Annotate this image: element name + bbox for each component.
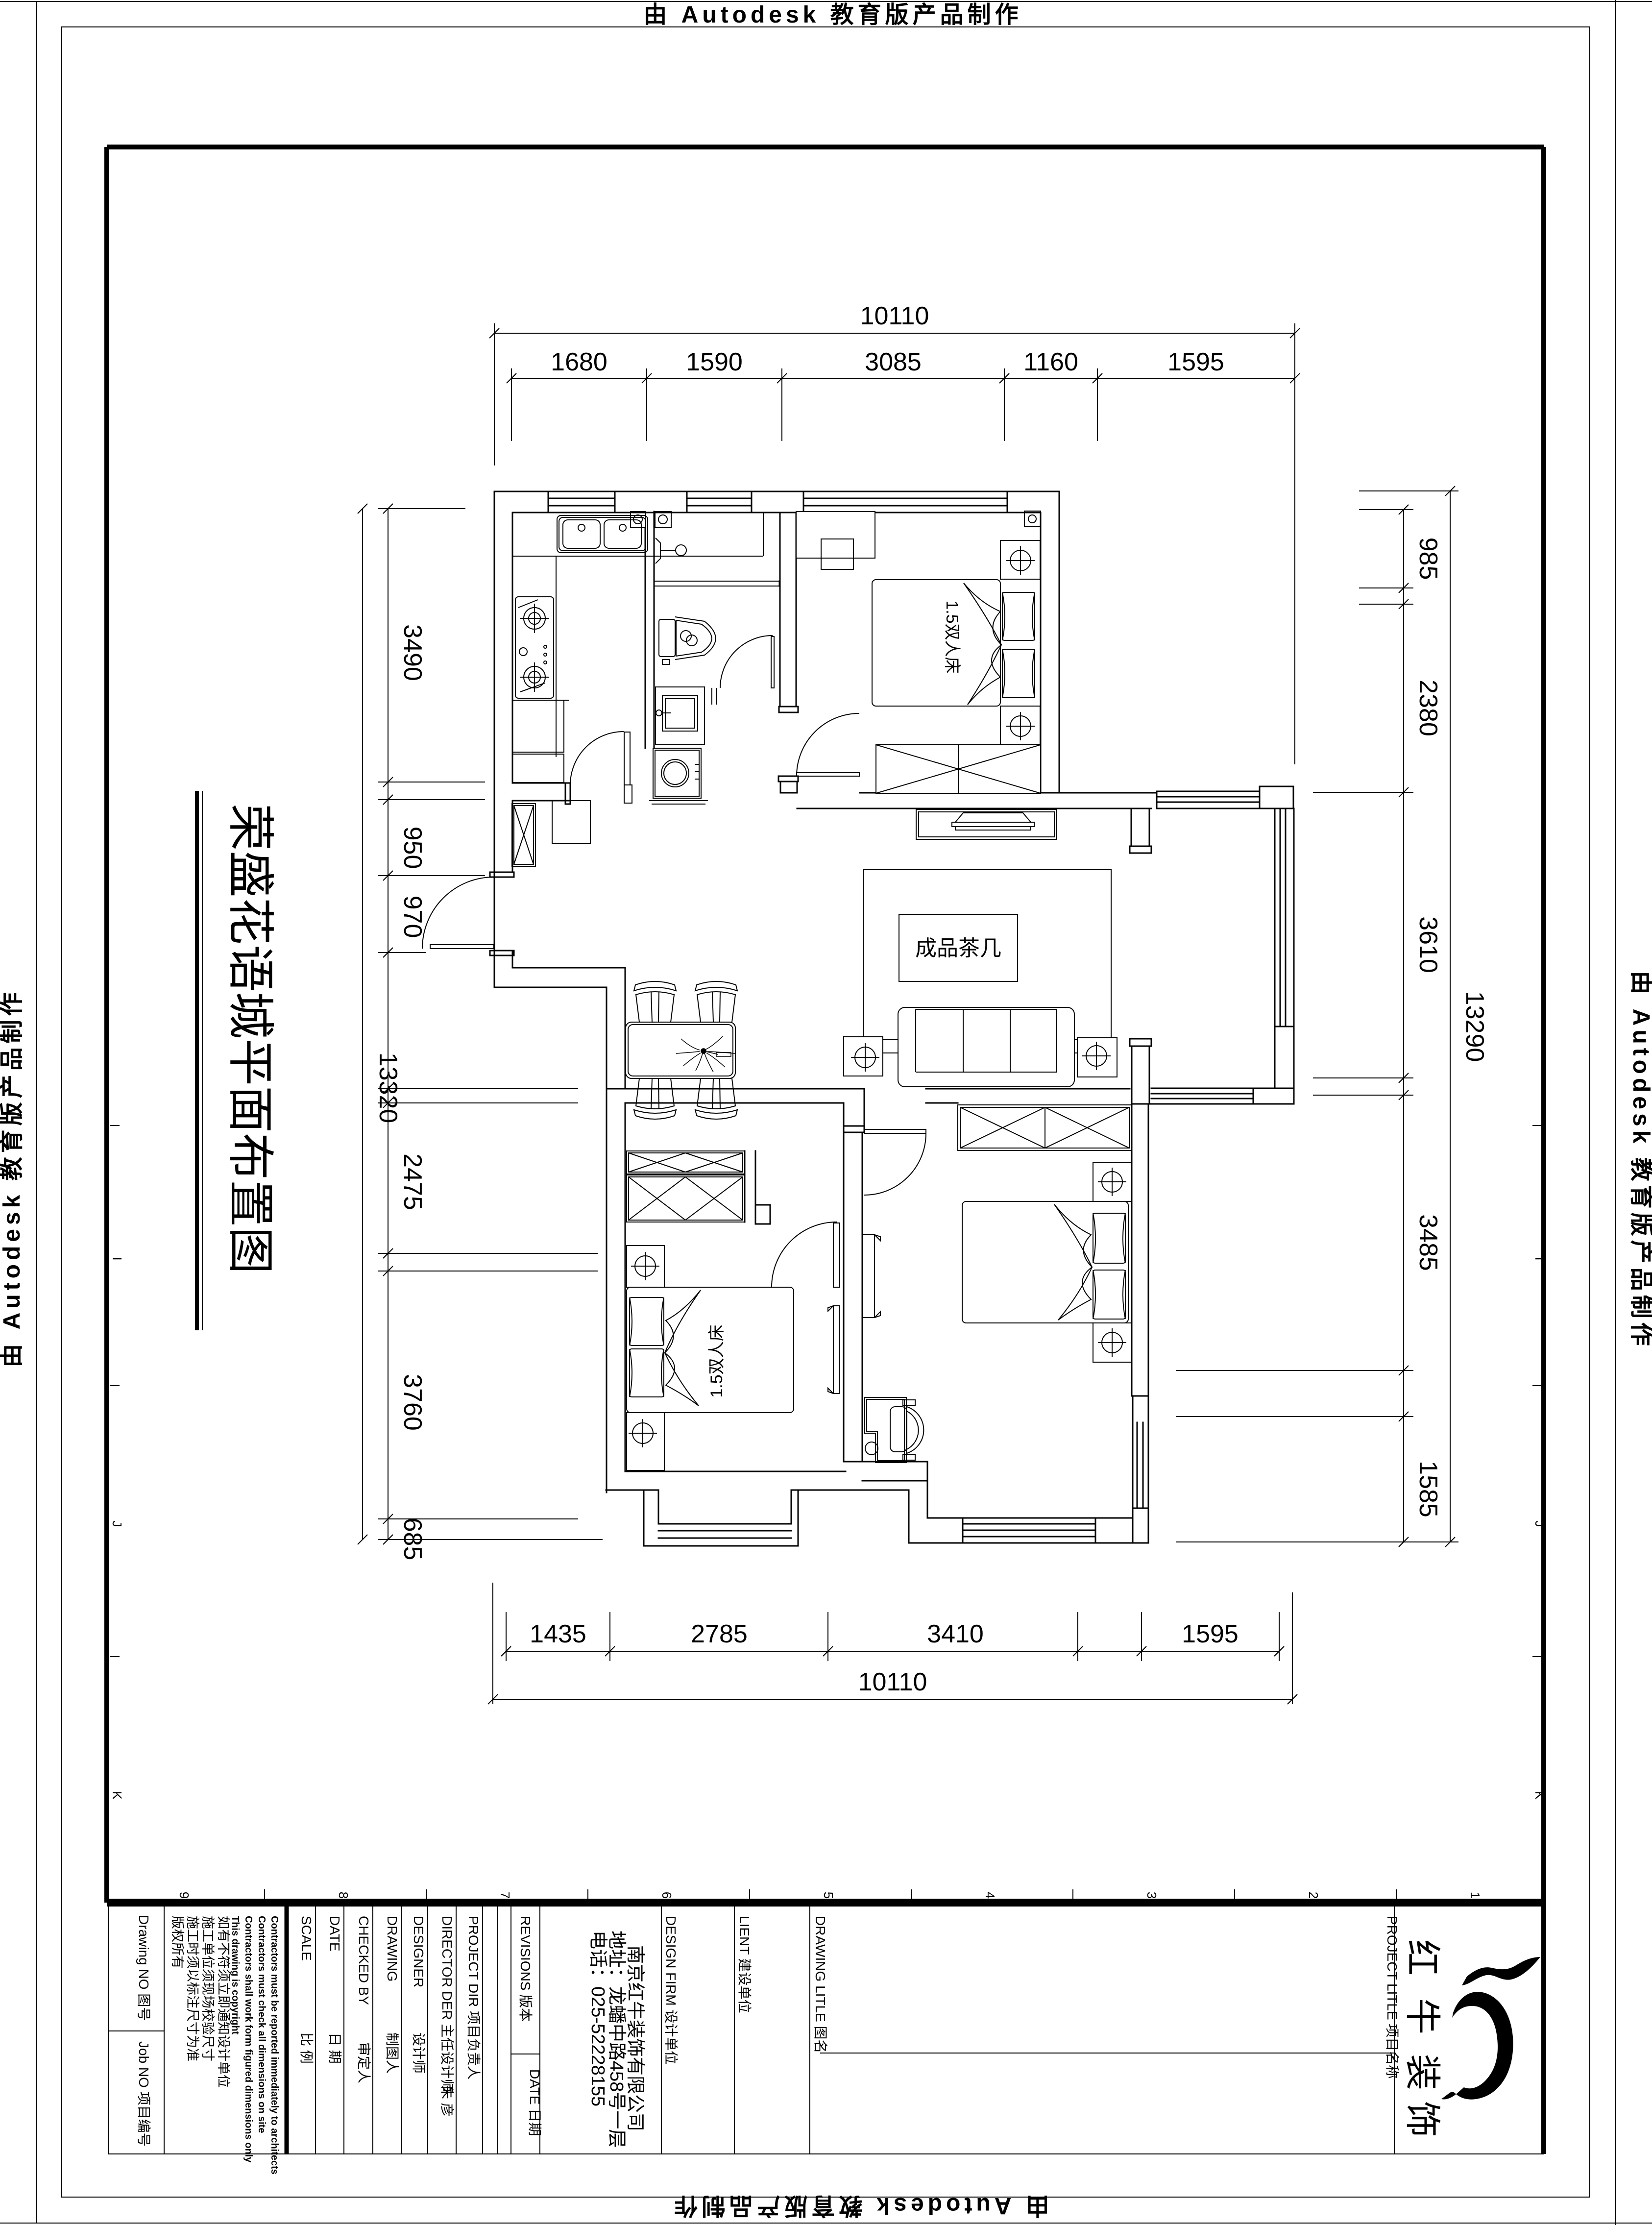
- svg-text:审定人: 审定人: [356, 2042, 371, 2083]
- svg-text:1160: 1160: [1023, 348, 1078, 376]
- svg-text:I: I: [110, 1257, 124, 1260]
- svg-text:K: K: [1532, 1791, 1547, 1800]
- svg-text:4: 4: [983, 1892, 997, 1899]
- svg-text:日 期: 日 期: [327, 2032, 342, 2064]
- svg-text:985: 985: [1414, 538, 1442, 580]
- svg-text:950: 950: [398, 827, 427, 869]
- svg-text:DESIGNER: DESIGNER: [411, 1916, 426, 1987]
- svg-text:2: 2: [1306, 1892, 1321, 1899]
- svg-text:Contractors shall work form fi: Contractors shall work form figured dime…: [243, 1916, 254, 2163]
- svg-text:DESIGN FIRM 设计单位: DESIGN FIRM 设计单位: [663, 1916, 679, 2064]
- svg-text:J: J: [110, 1521, 124, 1527]
- svg-text:施工单位须现场校验尺寸: 施工单位须现场校验尺寸: [200, 1916, 215, 2061]
- svg-text:荣盛花语城平面布置图: 荣盛花语城平面布置图: [224, 804, 276, 1274]
- svg-text:1585: 1585: [1414, 1461, 1442, 1517]
- svg-text:制图人: 制图人: [385, 2032, 400, 2074]
- svg-text:2785: 2785: [691, 1620, 748, 1648]
- svg-text:如有不符须立即通知设计单位: 如有不符须立即通知设计单位: [216, 1916, 231, 2088]
- svg-text:装: 装: [1402, 2054, 1443, 2090]
- svg-text:南京红牛装饰有限公司: 南京红牛装饰有限公司: [625, 1945, 645, 2131]
- svg-text:牛: 牛: [1402, 1998, 1443, 2034]
- svg-text:由 Autodesk 教育版产品制作: 由 Autodesk 教育版产品制作: [0, 988, 25, 1367]
- svg-text:5: 5: [821, 1892, 836, 1899]
- svg-text:1595: 1595: [1167, 348, 1224, 376]
- svg-text:朱 彦: 朱 彦: [439, 2085, 455, 2117]
- svg-text:1.5双人床: 1.5双人床: [943, 600, 961, 673]
- svg-text:DRAWING LITLE 图名: DRAWING LITLE 图名: [813, 1916, 828, 2054]
- svg-text:由 Autodesk 教育版产品制作: 由 Autodesk 教育版产品制作: [643, 2, 1022, 28]
- svg-text:由 Autodesk 教育版产品制作: 由 Autodesk 教育版产品制作: [670, 2193, 1049, 2219]
- svg-text:比 例: 比 例: [299, 2032, 314, 2064]
- svg-text:3490: 3490: [398, 624, 427, 681]
- svg-text:Contractors must check all dim: Contractors must check all dimensions on…: [256, 1916, 267, 2133]
- svg-text:2380: 2380: [1414, 680, 1442, 736]
- svg-text:成品茶几: 成品茶几: [915, 936, 1001, 960]
- svg-text:REVISIONS 版本: REVISIONS 版本: [518, 1916, 533, 2022]
- svg-text:13290: 13290: [1460, 991, 1489, 1062]
- svg-text:红: 红: [1402, 1939, 1443, 1976]
- svg-text:DRAWING: DRAWING: [385, 1916, 400, 1981]
- svg-text:3610: 3610: [1414, 916, 1442, 973]
- svg-text:电话：025-52228155: 电话：025-52228155: [587, 1931, 608, 2106]
- svg-text:3: 3: [1144, 1892, 1159, 1899]
- svg-text:10110: 10110: [860, 302, 929, 330]
- svg-text:J: J: [1532, 1521, 1547, 1527]
- svg-text:9: 9: [177, 1892, 192, 1899]
- svg-text:970: 970: [398, 896, 427, 938]
- svg-text:1680: 1680: [551, 348, 607, 376]
- svg-text:3485: 3485: [1414, 1214, 1442, 1271]
- svg-text:7: 7: [498, 1892, 512, 1899]
- svg-text:PROJECT DIR 项目负责人: PROJECT DIR 项目负责人: [466, 1916, 481, 2079]
- svg-text:3760: 3760: [398, 1374, 427, 1431]
- svg-text:Contractors must be reported i: Contractors must be reported immediately…: [269, 1916, 280, 2175]
- svg-text:施工时须以标注尺寸为准: 施工时须以标注尺寸为准: [185, 1916, 200, 2061]
- svg-text:3410: 3410: [927, 1620, 984, 1648]
- svg-text:6: 6: [659, 1892, 674, 1899]
- svg-text:3085: 3085: [865, 348, 922, 376]
- svg-text:Drawing NO 图号: Drawing NO 图号: [136, 1915, 151, 2021]
- svg-text:PROJECT LITLE 项目名称: PROJECT LITLE 项目名称: [1385, 1916, 1400, 2078]
- svg-text:地址：龙蟠中路458号一层: 地址：龙蟠中路458号一层: [606, 1931, 627, 2148]
- svg-text:由 Autodesk 教育版产品制作: 由 Autodesk 教育版产品制作: [1628, 971, 1652, 1349]
- svg-text:DATE: DATE: [327, 1916, 342, 1952]
- svg-text:1: 1: [1468, 1892, 1482, 1899]
- svg-text:饰: 饰: [1402, 2101, 1443, 2137]
- svg-text:1590: 1590: [686, 348, 743, 376]
- svg-text:DIRECTOR DER 主任设计师: DIRECTOR DER 主任设计师: [439, 1916, 455, 2092]
- svg-text:This drawing is copyright: This drawing is copyright: [230, 1916, 241, 2035]
- svg-text:LIENT 建设单位: LIENT 建设单位: [737, 1916, 752, 2013]
- svg-text:CHECKED BY: CHECKED BY: [356, 1916, 371, 2005]
- svg-text:13320: 13320: [374, 1052, 402, 1124]
- svg-text:10110: 10110: [858, 1668, 927, 1696]
- svg-text:SCALE: SCALE: [299, 1916, 314, 1961]
- svg-text:I: I: [1532, 1257, 1547, 1260]
- svg-text:1595: 1595: [1182, 1620, 1239, 1648]
- svg-text:DATE 日期: DATE 日期: [527, 2069, 542, 2136]
- svg-text:685: 685: [398, 1518, 427, 1561]
- svg-text:1435: 1435: [530, 1620, 586, 1648]
- svg-text:2475: 2475: [398, 1153, 427, 1210]
- svg-text:8: 8: [336, 1892, 351, 1899]
- svg-text:1.5双人床: 1.5双人床: [707, 1324, 726, 1397]
- svg-text:设计师: 设计师: [411, 2032, 426, 2074]
- svg-text:版权所有: 版权所有: [170, 1916, 185, 1969]
- svg-text:Job NO 项目编号: Job NO 项目编号: [136, 2041, 151, 2147]
- svg-text:K: K: [110, 1791, 124, 1800]
